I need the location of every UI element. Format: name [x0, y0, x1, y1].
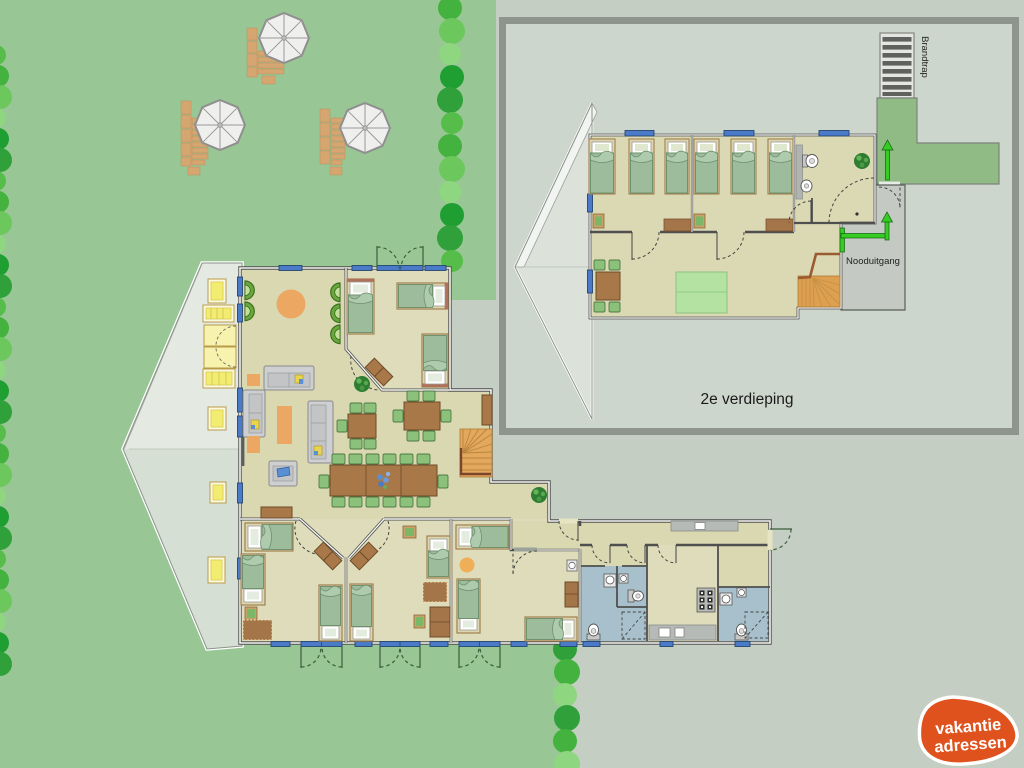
- svg-text:Brandtrap: Brandtrap: [919, 36, 930, 78]
- svg-text:2e verdieping: 2e verdieping: [700, 391, 793, 408]
- svg-text:Nooduitgang: Nooduitgang: [846, 256, 900, 267]
